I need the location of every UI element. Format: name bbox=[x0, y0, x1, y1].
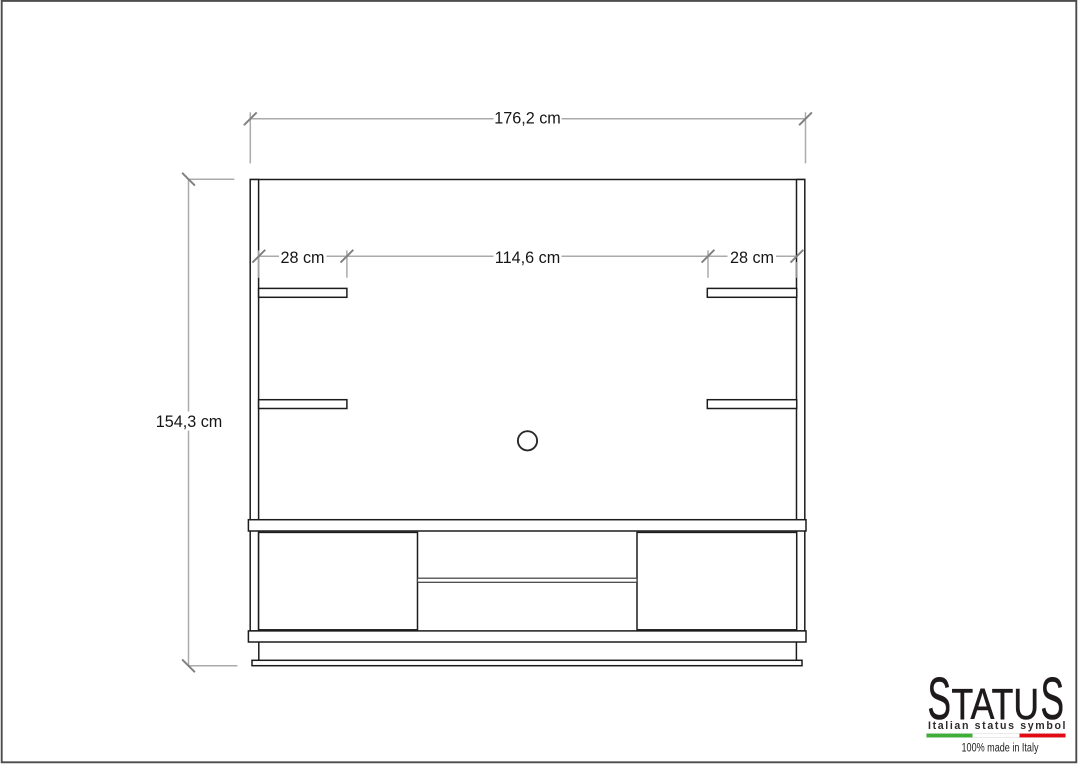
svg-text:28 cm: 28 cm bbox=[730, 249, 774, 267]
svg-text:114,6 cm: 114,6 cm bbox=[495, 249, 560, 267]
svg-text:28 cm: 28 cm bbox=[280, 249, 324, 267]
svg-text:100% made in Italy: 100% made in Italy bbox=[962, 740, 1040, 754]
svg-text:176,2 cm: 176,2 cm bbox=[494, 109, 561, 127]
svg-text:154,3 cm: 154,3 cm bbox=[156, 413, 223, 431]
